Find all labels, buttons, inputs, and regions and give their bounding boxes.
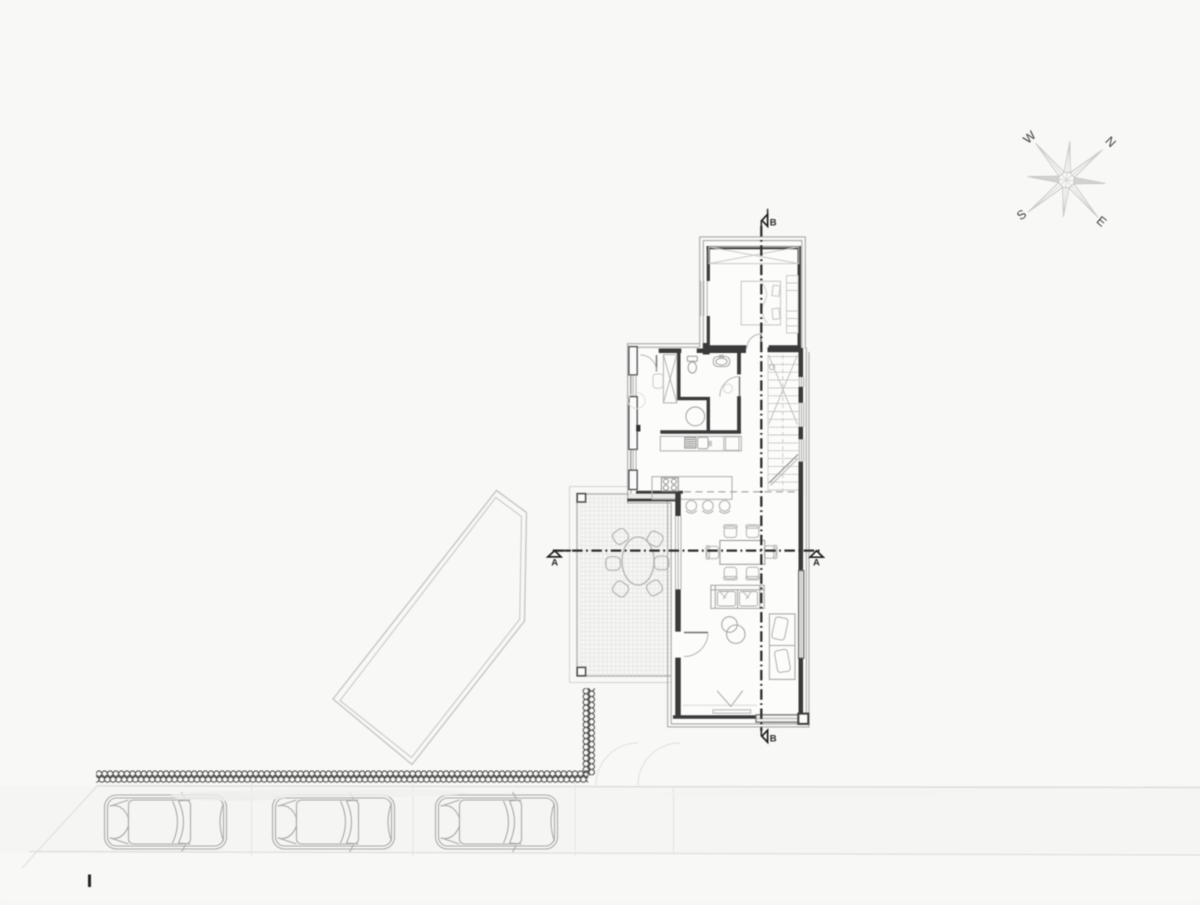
svg-text:A: A [813,558,820,569]
svg-text:B: B [770,734,777,745]
svg-text:B: B [770,218,777,229]
svg-text:A: A [551,558,558,569]
